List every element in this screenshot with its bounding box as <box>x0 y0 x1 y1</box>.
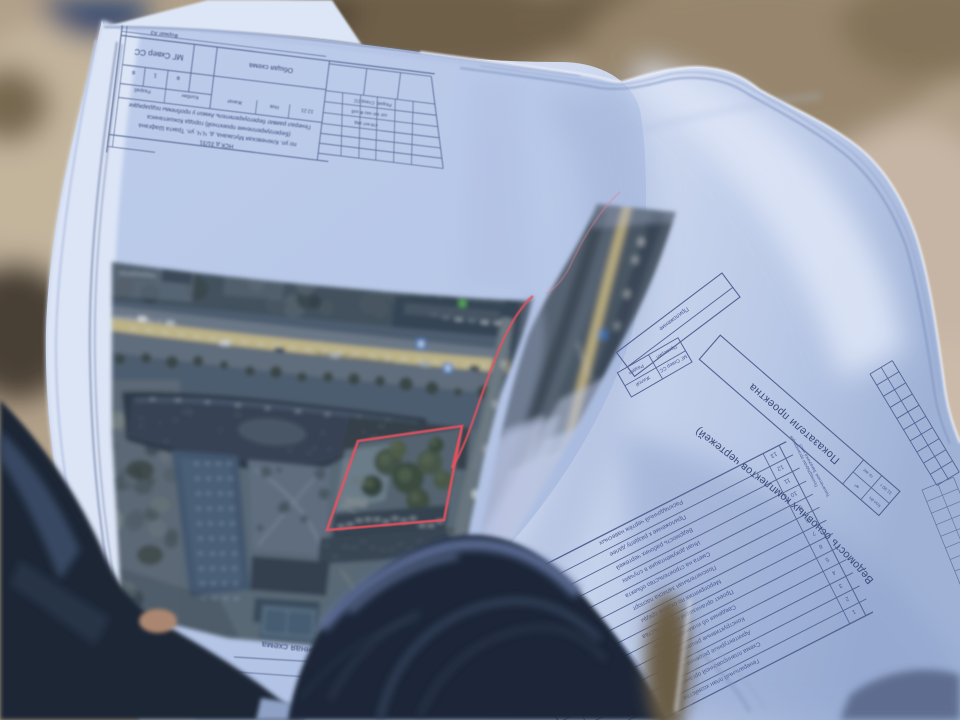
svg-text:Нов: Нов <box>269 103 279 110</box>
